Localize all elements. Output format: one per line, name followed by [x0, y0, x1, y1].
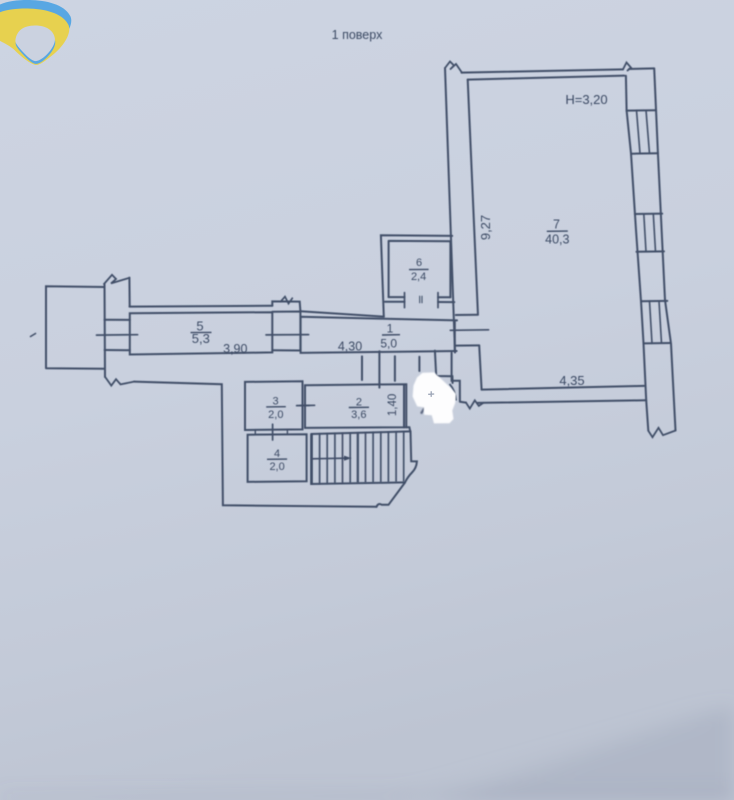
svg-text:1: 1: [387, 321, 394, 335]
svg-text:7: 7: [553, 218, 560, 232]
svg-text:9,27: 9,27: [478, 215, 493, 240]
svg-text:Н=3,20: Н=3,20: [565, 92, 607, 107]
svg-text:3,6: 3,6: [351, 409, 366, 421]
svg-text:2,4: 2,4: [411, 271, 426, 283]
svg-text:1,40: 1,40: [387, 394, 399, 416]
svg-text:2,0: 2,0: [268, 409, 283, 421]
svg-text:3: 3: [273, 396, 279, 408]
svg-text:1 поверх: 1 поверх: [332, 28, 383, 42]
svg-text:40,3: 40,3: [545, 233, 569, 247]
svg-text:4,30: 4,30: [338, 340, 362, 354]
svg-text:6: 6: [416, 257, 422, 269]
svg-text:2,0: 2,0: [269, 461, 284, 473]
svg-text:4: 4: [274, 448, 280, 460]
svg-text:4,35: 4,35: [559, 373, 584, 388]
svg-text:3,90: 3,90: [223, 342, 247, 356]
svg-text:5,0: 5,0: [380, 336, 397, 350]
